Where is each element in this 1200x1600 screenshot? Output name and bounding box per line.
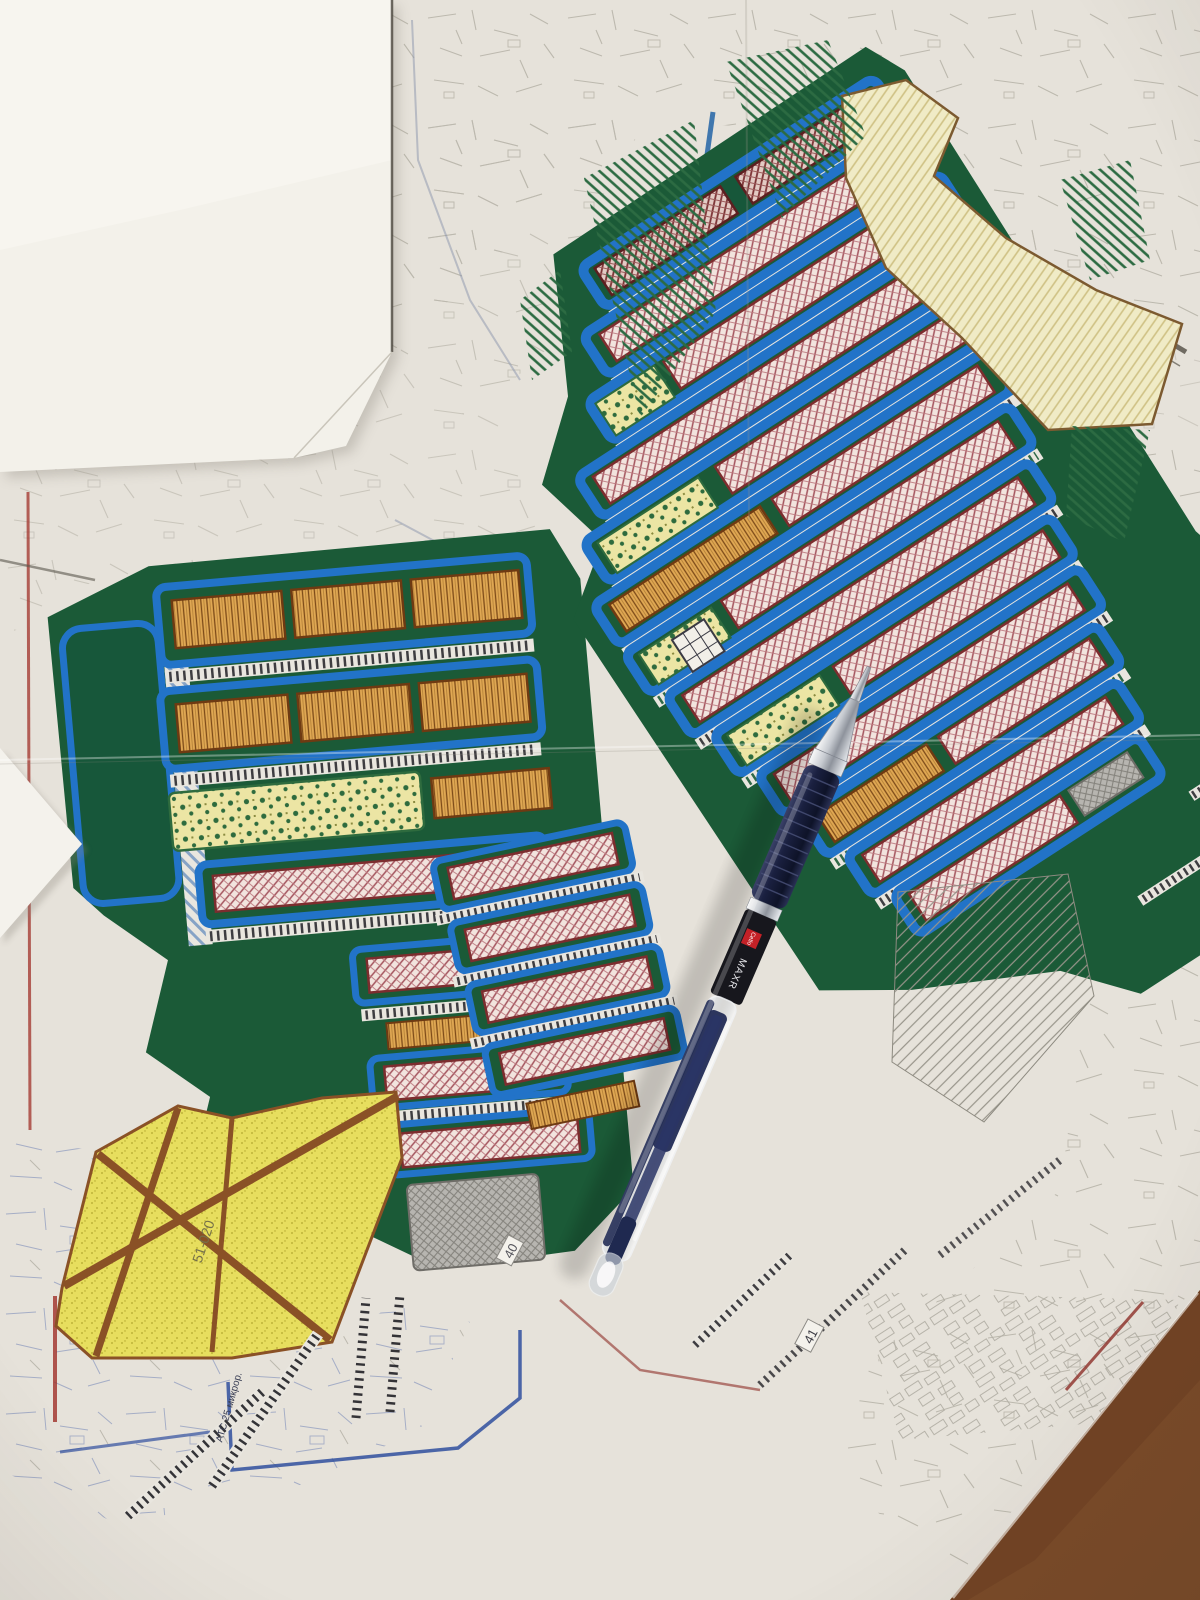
photo-of-printed-master-plan: 51-020 40 41 АТС 25 микрор. <box>0 0 1200 1600</box>
master-plan-scene: 51-020 40 41 АТС 25 микрор. <box>0 0 1200 1600</box>
photo-vignette <box>0 0 1200 1600</box>
